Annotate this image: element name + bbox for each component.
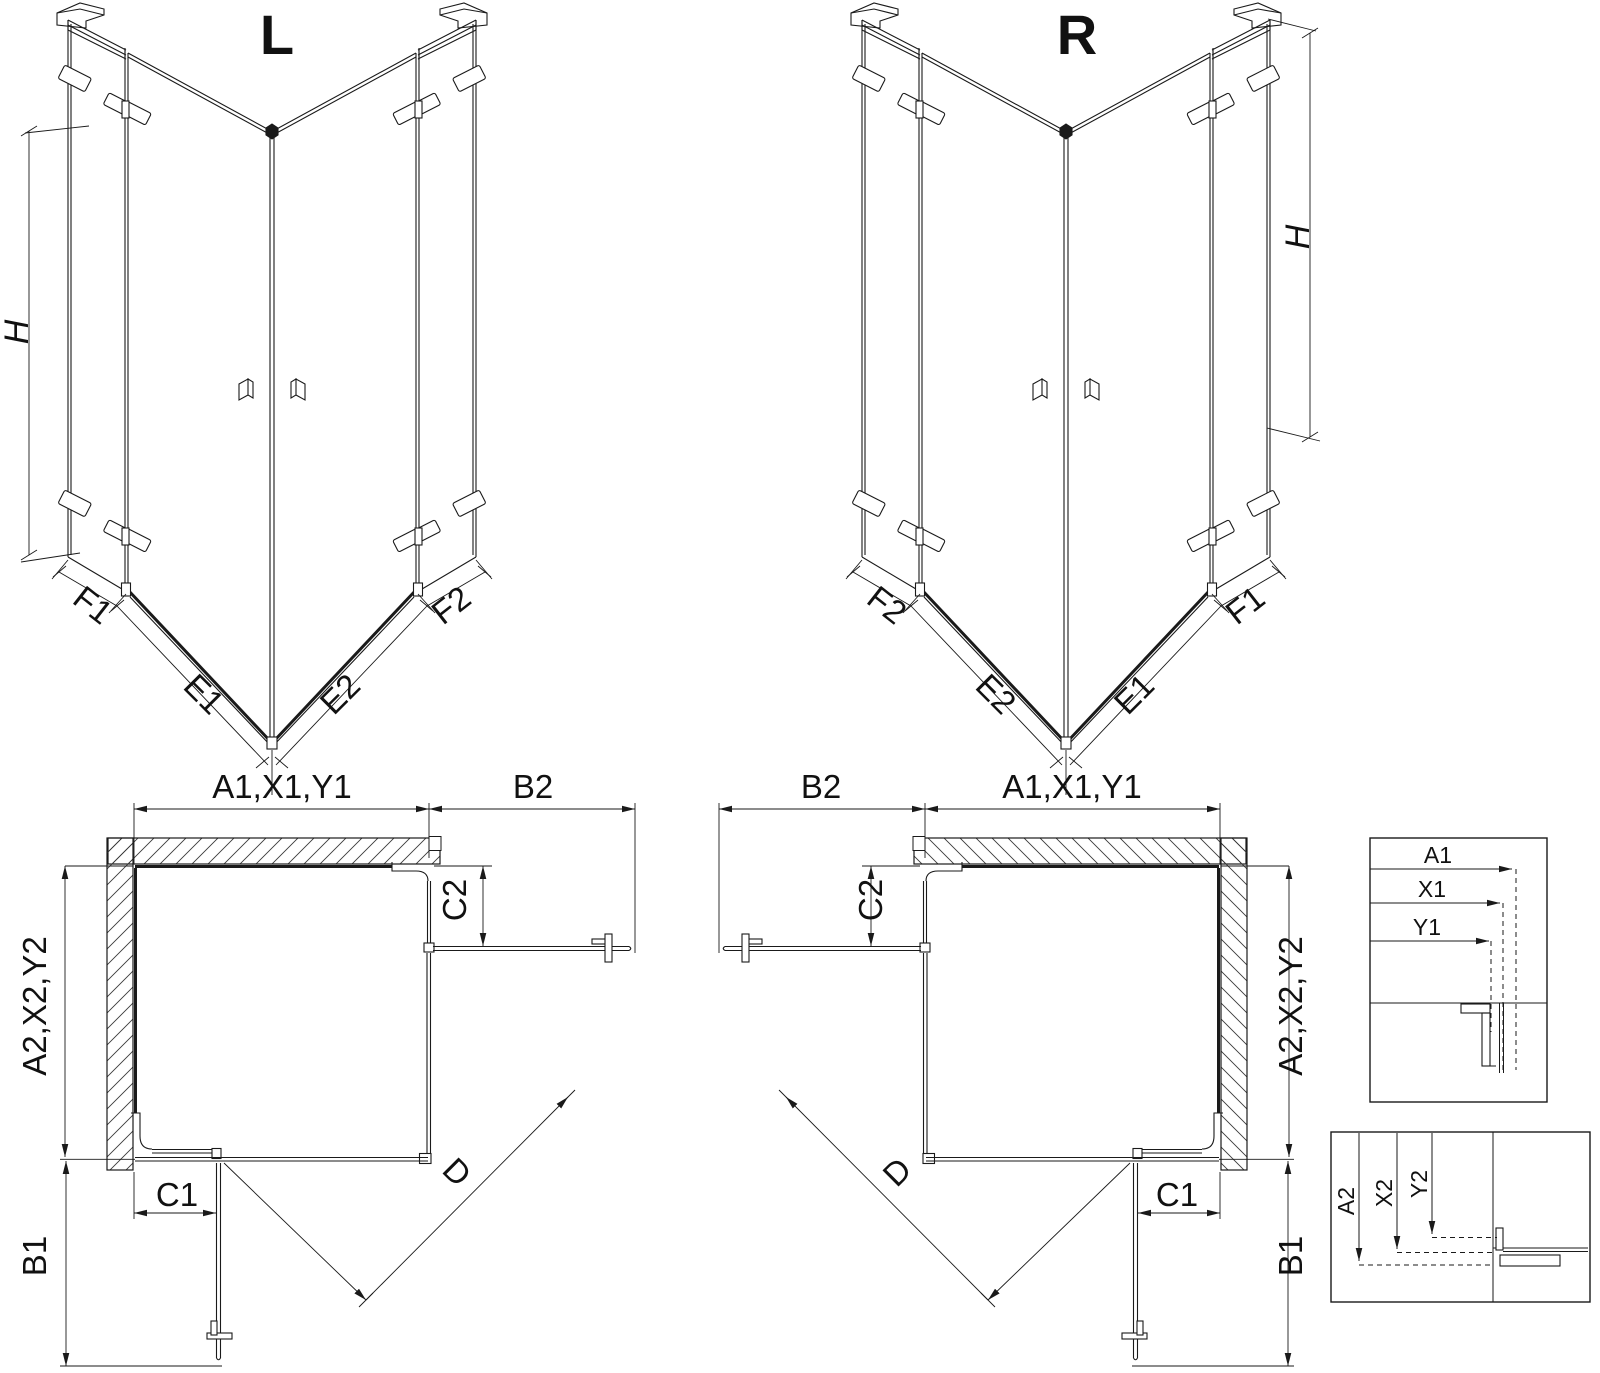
door-hinge-edge xyxy=(125,50,128,592)
glass-section-2 xyxy=(1493,1248,1588,1252)
iso-view-right-mirrored xyxy=(846,3,1286,795)
wall-bracket-top xyxy=(58,65,92,92)
iso-right-label-f2: F2 xyxy=(861,579,914,632)
wall-end-notch xyxy=(429,837,441,851)
iso-left-label-f2: F2 xyxy=(424,579,477,632)
iso-right-label-e2: E2 xyxy=(969,667,1024,722)
door-b2-handle xyxy=(605,934,612,962)
tray-corner-block xyxy=(420,1154,432,1164)
detail-x1-label: X1 xyxy=(1418,876,1446,902)
detail-y2-label: Y2 xyxy=(1406,1170,1432,1198)
iso-right-title: R xyxy=(1057,3,1097,66)
iso-right-label-e1: E1 xyxy=(1107,667,1162,722)
profile-bar-2 xyxy=(1500,1255,1560,1266)
fixed-panel-c1 xyxy=(152,1150,213,1154)
detail-a1-label: A1 xyxy=(1424,842,1452,868)
plan-right-fixed-bottom-label: C1 xyxy=(1156,1176,1198,1213)
plan-left-height-side-label: A2,X2,Y2 xyxy=(16,936,53,1075)
detail-box-1 xyxy=(1370,838,1547,1102)
detail-a2-label: A2 xyxy=(1333,1187,1359,1215)
fixed-panel-c2 xyxy=(428,881,431,944)
detail-x2-label: X2 xyxy=(1371,1179,1397,1207)
iso-right-height-label: H xyxy=(1279,224,1317,249)
profile-bar xyxy=(1461,1004,1490,1013)
wall-left xyxy=(107,838,133,1170)
plan-left-fixed-top-label: C2 xyxy=(436,879,473,921)
door-pivot-top xyxy=(424,943,434,952)
door-b2-closed-position xyxy=(427,953,431,1155)
glass-corner-profile-top xyxy=(392,862,428,881)
plan-right-width-top-label: A1,X1,Y1 xyxy=(1002,768,1141,805)
detail-horizontal-dimensions xyxy=(1370,838,1547,1102)
plan-view-graphics xyxy=(60,803,635,1366)
door-top-edge xyxy=(128,53,271,135)
corner-bottom-block xyxy=(267,737,277,749)
plan-left-diagonal-label: D xyxy=(436,1150,479,1193)
detail-box-2 xyxy=(1331,1132,1590,1302)
profile-leg xyxy=(1482,1013,1490,1066)
plan-left-fixed-bottom-label: C1 xyxy=(156,1176,198,1213)
corner-cap xyxy=(266,124,278,139)
glass-corner-profile-bottom xyxy=(131,1113,152,1149)
hinge-top-knuckle xyxy=(122,101,129,118)
plan-view-right-mirrored xyxy=(719,803,1294,1366)
plan-right-width-door-label: B2 xyxy=(801,768,841,805)
threshold-rail xyxy=(128,590,270,741)
iso-left-label-e2: E2 xyxy=(313,667,368,722)
shower-enclosure-technical-drawing: L R H H F1 E1 E2 F2 F2 E2 E1 F1 A1,X1,Y1… xyxy=(0,0,1600,1373)
door-b1-handle xyxy=(211,1321,217,1335)
iso-right-label-f1: F1 xyxy=(1218,579,1271,632)
iso-view-graphics xyxy=(52,3,492,795)
detail-y1-label: Y1 xyxy=(1413,914,1441,940)
plan-left-width-door-label: B2 xyxy=(513,768,553,805)
iso-left-label-f1: F1 xyxy=(67,579,120,632)
iso-left-title: L xyxy=(260,3,294,66)
plan-right-height-door-label: B1 xyxy=(1272,1236,1309,1276)
profile-leg-2 xyxy=(1496,1228,1503,1250)
tray-bottom-edge xyxy=(135,1158,428,1162)
hinge-bottom-knuckle xyxy=(122,528,129,545)
plan-right-height-side-label: A2,X2,Y2 xyxy=(1272,936,1309,1075)
plan-left-height-door-label: B1 xyxy=(16,1236,53,1276)
door-b2-open xyxy=(433,947,631,951)
plan-left-width-top-label: A1,X1,Y1 xyxy=(212,768,351,805)
plan-dimension-lines xyxy=(60,803,635,1366)
drawing-page: L R H H F1 E1 E2 F2 F2 E2 E1 F1 A1,X1,Y1… xyxy=(0,0,1600,1373)
wall-profile-cap xyxy=(57,3,104,28)
fixed-panel-outer-edge xyxy=(68,20,71,557)
iso-left-height-label: H xyxy=(0,319,36,344)
corner-column xyxy=(270,133,274,748)
detail-vertical-dimensions xyxy=(1331,1132,1590,1302)
door-handle-knob xyxy=(239,379,253,400)
wall-top xyxy=(108,838,440,864)
iso-half-panel-and-door xyxy=(52,3,271,768)
iso-left-label-e1: E1 xyxy=(177,667,232,722)
plan-right-diagonal-label: D xyxy=(875,1150,918,1193)
wall-bracket-bottom xyxy=(58,490,92,517)
plan-right-fixed-top-label: C2 xyxy=(852,879,889,921)
